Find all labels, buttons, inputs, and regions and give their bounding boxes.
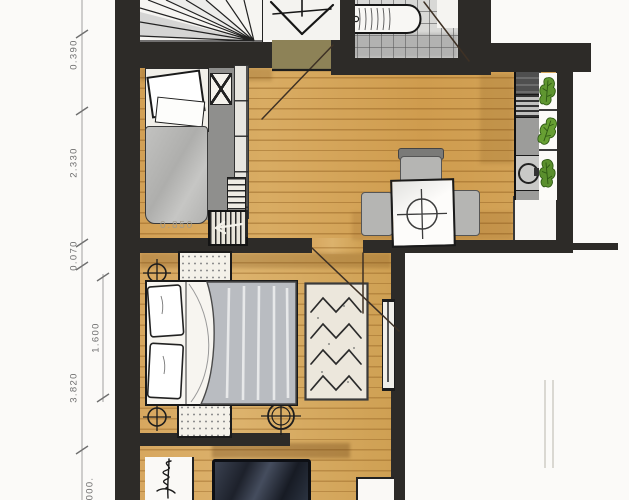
sill-divider [539, 149, 557, 151]
dimension-lines [0, 0, 120, 500]
entry-floor [272, 40, 331, 71]
ladder-upper [227, 177, 246, 213]
stair-direction-arrow-icon [263, 0, 341, 40]
bottom-right-panel [356, 477, 394, 500]
single-bed-blanket [145, 126, 208, 224]
plant-icon [535, 152, 560, 196]
radiator [382, 299, 395, 391]
dining-table [390, 178, 456, 248]
dimension-label: 3.820 [69, 371, 80, 405]
door-threshold-floor [312, 238, 363, 254]
bathtub-icon [347, 2, 431, 36]
wall-stub-right [573, 243, 618, 250]
dimension-label: 000. [85, 472, 96, 500]
corridor [262, 0, 341, 40]
double-bed [145, 280, 298, 406]
bottom-left-door [145, 457, 194, 500]
shower-tray [437, 0, 458, 28]
wall-segment-top-right [473, 43, 591, 72]
chair-left [361, 192, 393, 236]
floor-note-label: 0.850 [160, 220, 194, 231]
wall-segment-right [556, 60, 573, 252]
wall-segment-stairs [140, 42, 272, 68]
dimension-label: 1.600 [91, 321, 102, 355]
single-bed-head [145, 68, 209, 132]
ceiling-light-icon [143, 403, 171, 431]
floor-plan-page: 0.850 [0, 0, 629, 500]
table-light-symbol-icon [392, 180, 454, 246]
wardrobe-cross-box [210, 73, 232, 105]
counter-section [516, 191, 541, 200]
bathroom [345, 0, 458, 60]
dimension-label: 2.330 [69, 146, 80, 180]
sill-divider [539, 109, 557, 111]
nightstand [178, 251, 232, 283]
floor-blank-area [513, 196, 558, 242]
rug [304, 282, 369, 401]
plant-icon [539, 75, 557, 109]
kitchen-appliance [516, 72, 541, 95]
dark-bed-object [212, 459, 311, 500]
dimension-label: 0.070 [69, 239, 80, 273]
pillow [155, 97, 205, 128]
vent-grill [516, 95, 541, 118]
radiator-line [387, 302, 389, 382]
ladder-lower [208, 210, 248, 246]
sketch-doodle-icon [145, 457, 192, 500]
arrow-left-icon [210, 212, 246, 240]
nightstand [177, 402, 232, 438]
window-sill [539, 73, 557, 200]
stair-fan-icon [140, 0, 262, 42]
tile-shading [345, 34, 458, 58]
dimension-label: 0.390 [69, 38, 80, 72]
staircase-room [140, 0, 263, 42]
